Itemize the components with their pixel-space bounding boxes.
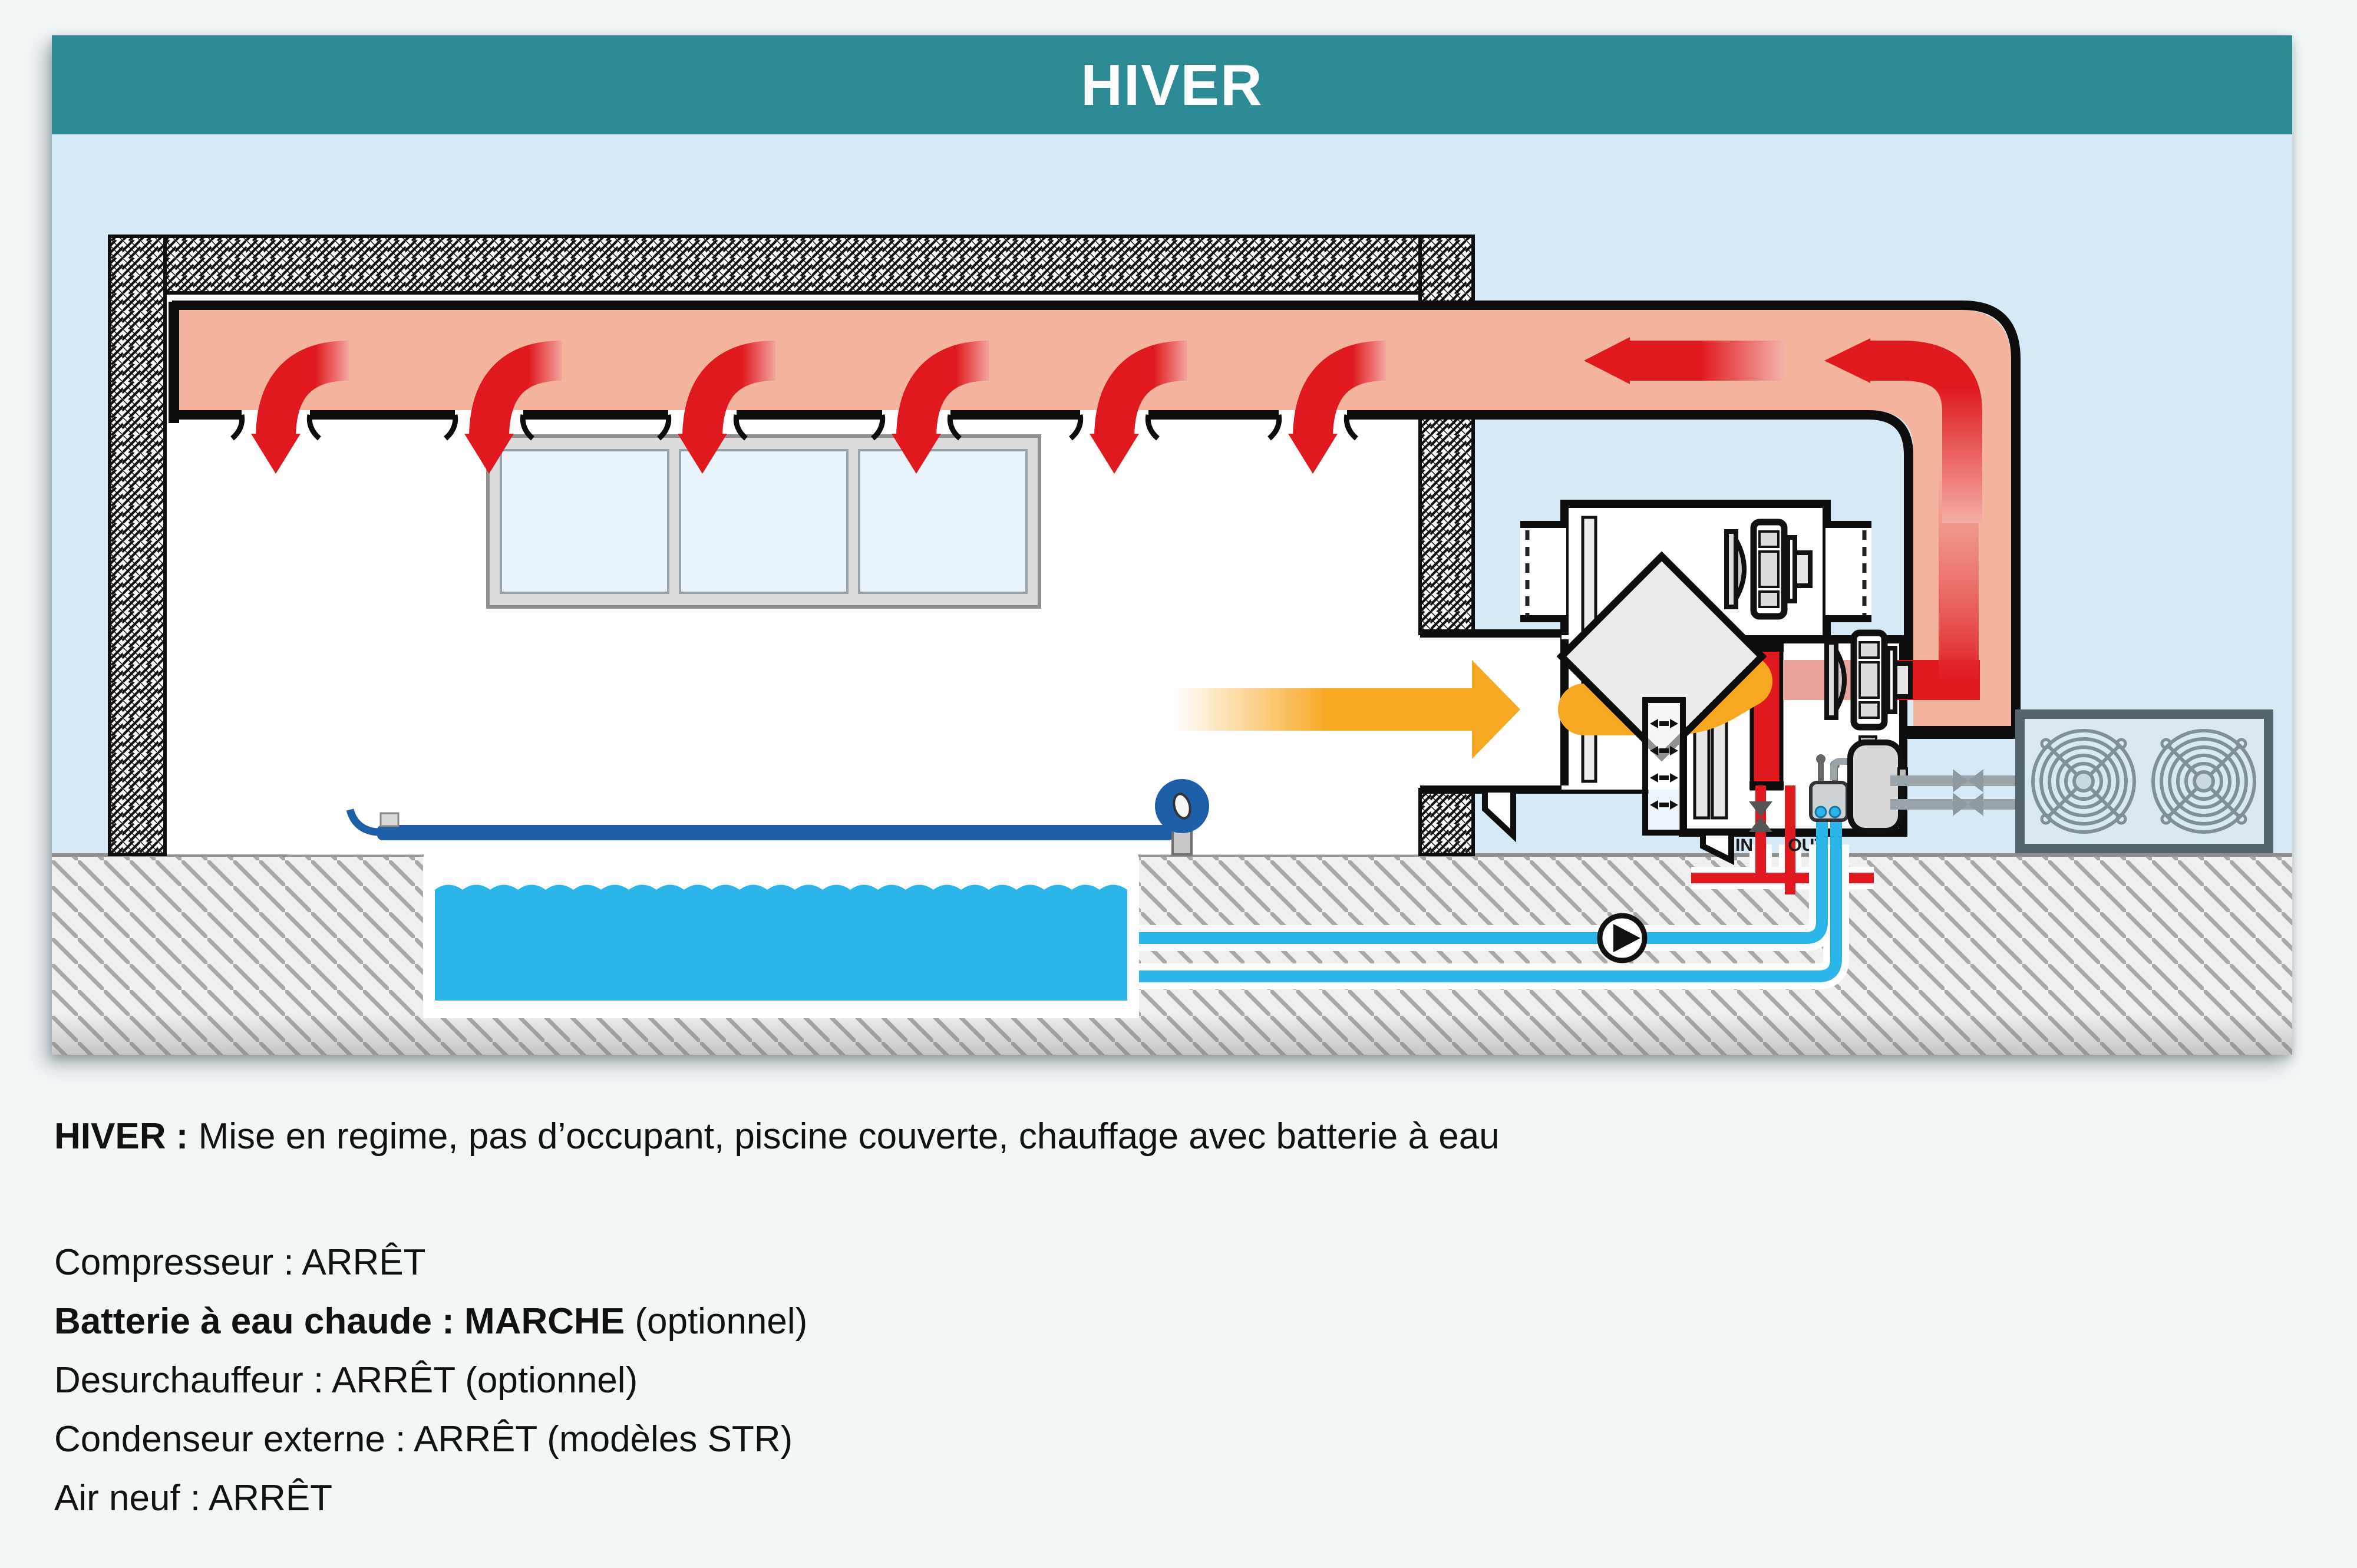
wall-left xyxy=(110,236,165,854)
diagram-panel: HIVER xyxy=(52,35,2292,1055)
status-block: Compresseur : ARRÊT Batterie à eau chaud… xyxy=(54,1233,807,1528)
fan-grille-icon xyxy=(2033,731,2134,832)
window-pane xyxy=(680,450,847,593)
duct-left-cap xyxy=(169,302,179,423)
wall-right-upper xyxy=(1420,236,1473,305)
panel-body: IN OUT xyxy=(52,134,2292,1055)
windows xyxy=(488,436,1039,607)
ground xyxy=(52,853,2292,1055)
in-label: IN xyxy=(1735,836,1753,855)
status-line-water-coil: Batterie à eau chaude : MARCHE (optionne… xyxy=(54,1292,807,1351)
filter-bar xyxy=(1583,517,1596,633)
wall-right-middle xyxy=(1420,415,1473,633)
external-condenser xyxy=(2020,714,2269,849)
caption-text: Mise en regime, pas d’occupant, piscine … xyxy=(188,1116,1499,1157)
status-line-compressor: Compresseur : ARRÊT xyxy=(54,1233,807,1292)
pool-water xyxy=(435,885,1127,1001)
duct-bottom-cap xyxy=(1903,726,2018,739)
wall-right-lower xyxy=(1420,790,1473,854)
status-line-desuperheater: Desurchauffeur : ARRÊT (optionnel) xyxy=(54,1351,807,1410)
status-line-external-condenser: Condenseur externe : ARRÊT (modèles STR) xyxy=(54,1410,807,1469)
caption-title: HIVER : xyxy=(54,1116,188,1157)
wall-top xyxy=(110,236,1473,293)
hvac-schematic: IN OUT xyxy=(52,134,2292,1055)
fan-grille-icon xyxy=(2153,731,2254,832)
intake-louver xyxy=(1645,700,1683,833)
status-line-fresh-air: Air neuf : ARRÊT xyxy=(54,1469,807,1528)
panel-header: HIVER xyxy=(52,35,2292,134)
cover-clip xyxy=(381,813,398,826)
window-pane xyxy=(501,450,668,593)
caption: HIVER : Mise en regime, pas d’occupant, … xyxy=(54,1115,1500,1157)
window-pane xyxy=(859,450,1026,593)
page-title: HIVER xyxy=(1081,52,1263,118)
